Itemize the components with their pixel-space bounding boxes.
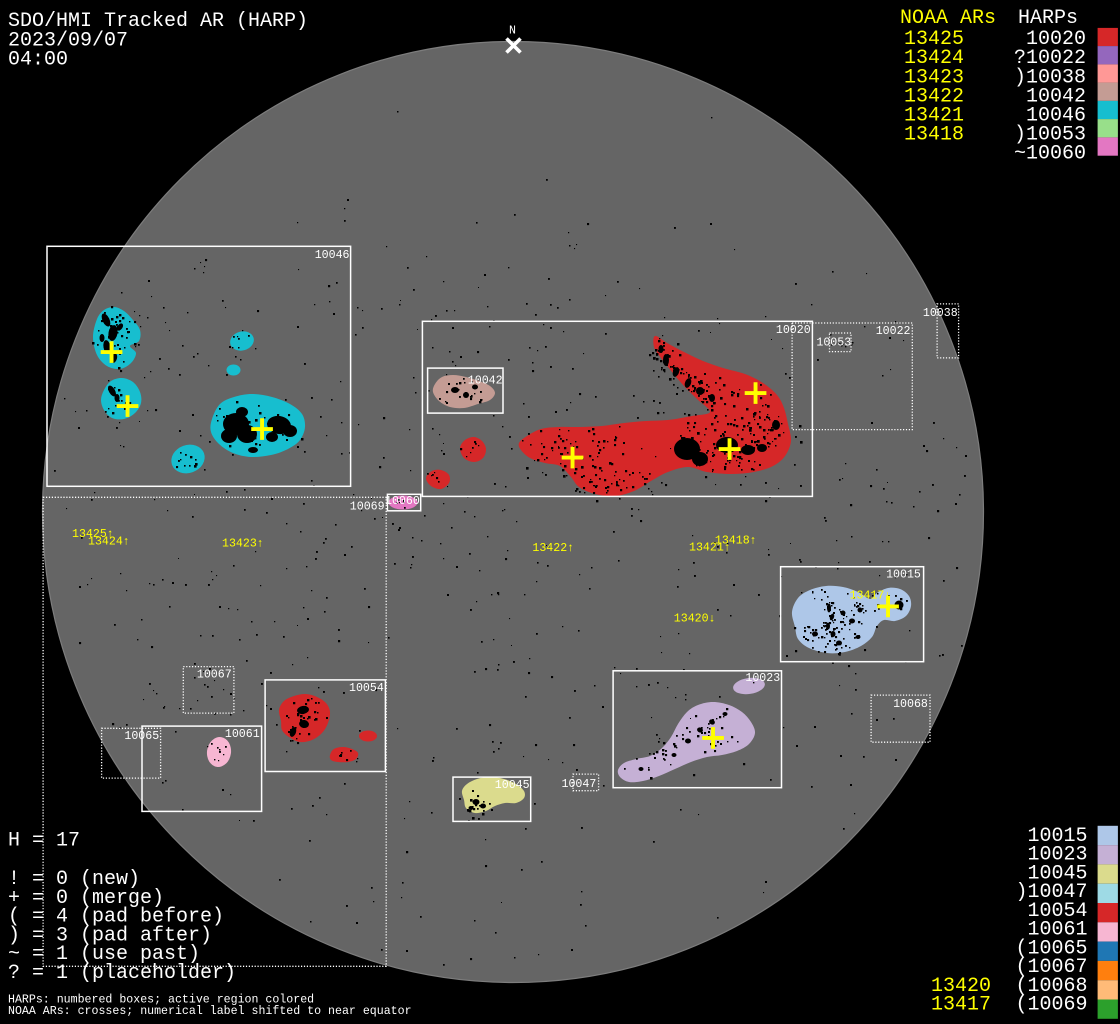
svg-text:10038: 10038 xyxy=(923,307,958,320)
svg-text:H = 17: H = 17 xyxy=(8,830,80,853)
svg-text:10054: 10054 xyxy=(349,682,384,695)
svg-text:10068: 10068 xyxy=(893,698,928,711)
svg-text:04:00: 04:00 xyxy=(8,49,68,72)
svg-text:10020: 10020 xyxy=(776,324,811,337)
svg-text:13420↓: 13420↓ xyxy=(674,612,716,625)
svg-text:10069: 10069 xyxy=(350,500,385,513)
svg-text:NOAA ARs: NOAA ARs xyxy=(900,7,996,30)
svg-text:~10060: ~10060 xyxy=(1014,142,1086,165)
svg-text:10046: 10046 xyxy=(315,249,350,262)
svg-text:10047: 10047 xyxy=(562,778,597,791)
svg-text:NOAA ARs: crosses; numerical l: NOAA ARs: crosses; numerical label shift… xyxy=(8,1005,412,1018)
svg-text:13422↑: 13422↑ xyxy=(532,542,574,555)
svg-text:10045: 10045 xyxy=(495,779,530,792)
svg-text:10023: 10023 xyxy=(745,672,780,685)
svg-text:10015: 10015 xyxy=(886,568,921,581)
svg-text:HARPs: HARPs xyxy=(1018,7,1078,30)
svg-text:N: N xyxy=(509,25,516,38)
svg-text:10067: 10067 xyxy=(197,669,232,682)
svg-text:10022: 10022 xyxy=(876,325,911,338)
svg-text:10060: 10060 xyxy=(385,495,420,508)
svg-text:13417↓: 13417↓ xyxy=(850,590,892,603)
svg-text:13418↑: 13418↑ xyxy=(715,534,757,547)
svg-text:10061: 10061 xyxy=(225,728,260,741)
svg-text:? = 1 (placeholder): ? = 1 (placeholder) xyxy=(8,962,236,985)
svg-text:10053: 10053 xyxy=(816,336,851,349)
svg-text:10065: 10065 xyxy=(124,730,159,743)
svg-text:13418: 13418 xyxy=(904,123,964,146)
svg-text:13423↑: 13423↑ xyxy=(222,538,264,551)
svg-text:10042: 10042 xyxy=(468,375,503,388)
svg-text:(10069: (10069 xyxy=(1015,994,1087,1017)
svg-text:13424↑: 13424↑ xyxy=(88,536,130,549)
svg-text:13417: 13417 xyxy=(931,994,991,1017)
